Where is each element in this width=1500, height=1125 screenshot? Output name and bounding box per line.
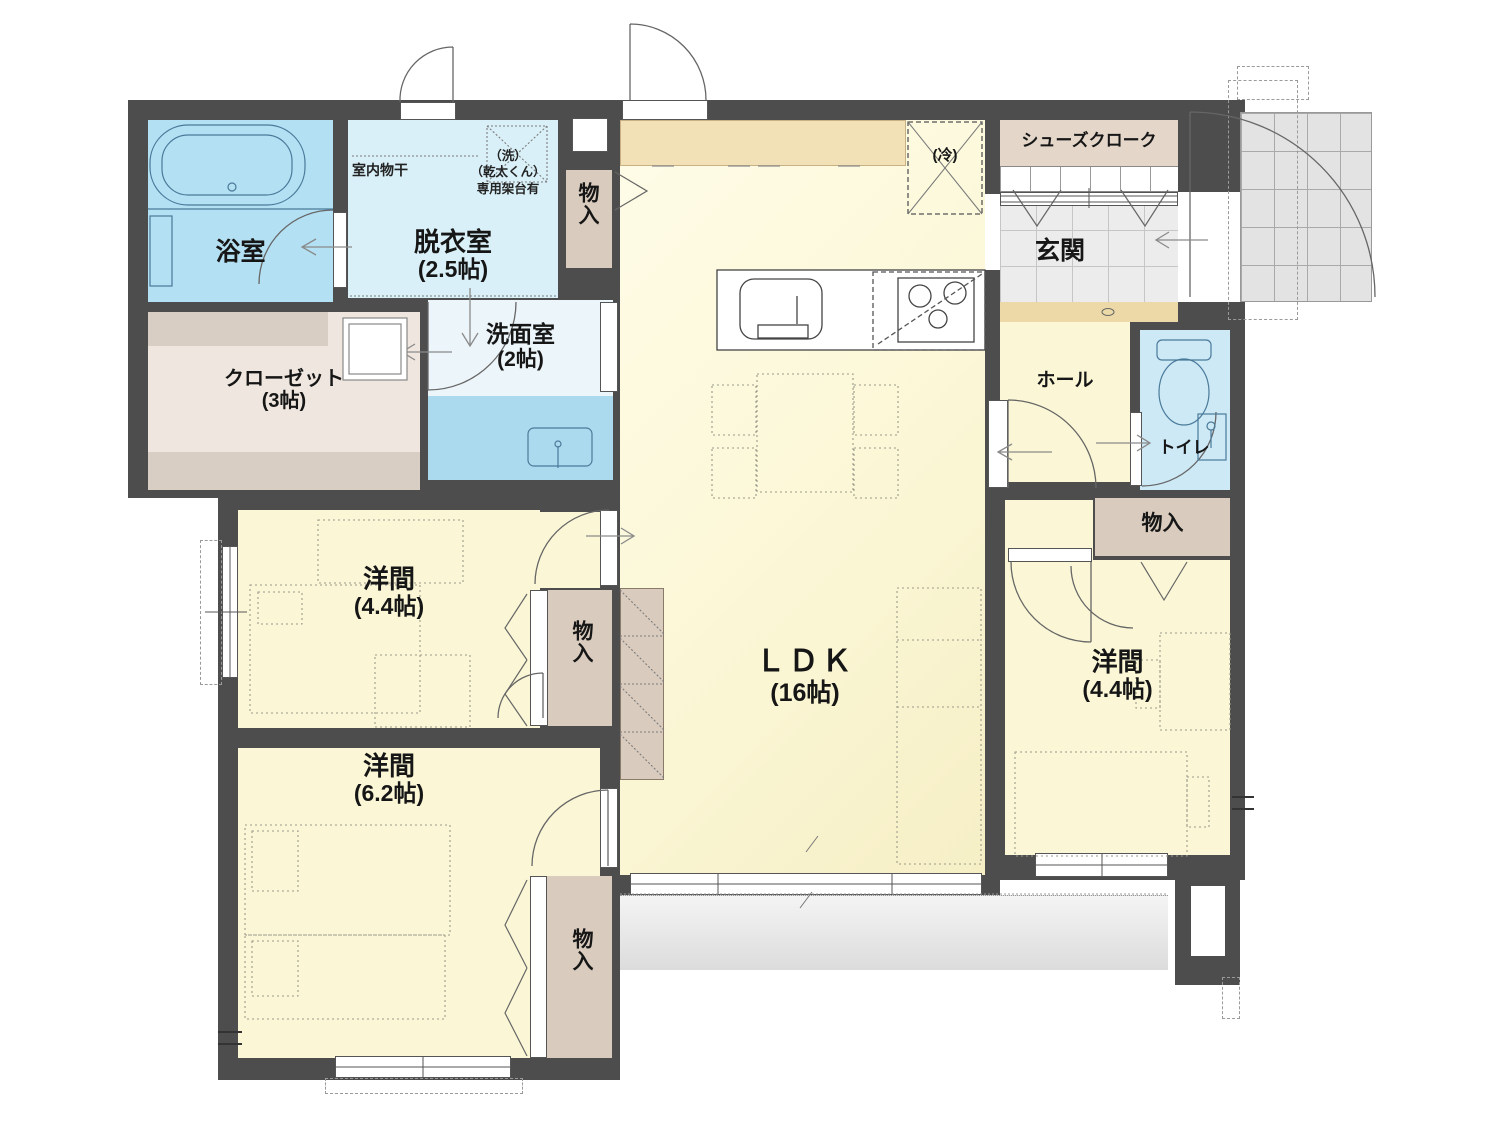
label-dressing: 脱衣室 (2.5帖) — [348, 228, 558, 283]
west-left-name: 洋間 — [363, 564, 415, 594]
west-bottom-size: (6.2帖) — [238, 781, 540, 807]
label-west-right: 洋間 (4.4帖) — [1005, 648, 1230, 703]
label-shoe-cloak: シューズクローク — [1000, 131, 1178, 150]
deck-terrace — [620, 895, 1168, 970]
label-ldk: ＬＤＫ (16帖) — [720, 645, 890, 707]
label-toilet: トイレ — [1138, 438, 1230, 457]
label-hall: ホール — [1000, 370, 1130, 391]
west-right-name: 洋間 — [1091, 647, 1143, 677]
opening-hall-door — [988, 400, 1008, 488]
storage-top-window — [572, 118, 608, 152]
label-storage-mid: 物入 — [566, 620, 596, 664]
washroom-size: (2帖) — [428, 348, 613, 372]
opening-back-door — [622, 100, 708, 120]
eave-porch — [1228, 80, 1298, 320]
eave-top-right — [1237, 66, 1309, 100]
window-left-wall — [222, 546, 238, 678]
label-washer-note: （洗） （乾太くん） 専用架台有 — [452, 148, 564, 197]
storage-top-name: 物入 — [576, 182, 599, 226]
label-west-bottom: 洋間 (6.2帖) — [238, 752, 540, 807]
west-right-size: (4.4帖) — [1005, 677, 1230, 703]
washer-note-line1: （洗） — [452, 148, 564, 164]
washer-note-line2: （乾太くん） — [452, 164, 564, 180]
entrance-name: 玄関 — [1035, 237, 1085, 265]
corridor-left — [540, 512, 600, 588]
floor-plan: 浴室 脱衣室 (2.5帖) 洗面室 (2帖) クローゼット (3帖) ＬＤＫ (… — [0, 0, 1500, 1125]
label-west-left: 洋間 (4.4帖) — [238, 565, 540, 620]
room-west-bottom-b — [238, 876, 530, 1058]
shoe-cloak-shelf — [1000, 166, 1178, 192]
eave-bottom-window — [325, 1078, 523, 1094]
hall-name: ホール — [1036, 370, 1093, 391]
label-fridge: (冷) — [908, 148, 982, 165]
label-entrance: 玄関 — [1000, 237, 1120, 265]
dressing-size: (2.5帖) — [348, 257, 558, 283]
eave-left-window — [200, 540, 222, 685]
label-storage-bottom: 物入 — [566, 928, 596, 972]
label-bath: 浴室 — [148, 238, 333, 266]
opening-west44l-door — [600, 510, 618, 586]
entrance-sliding-door — [1000, 192, 1178, 206]
kitchen-counter — [620, 120, 906, 166]
fridge-text: (冷) — [933, 147, 958, 164]
west-left-size: (4.4帖) — [238, 594, 540, 620]
eave-bottom-right — [1222, 977, 1240, 1019]
opening-bath-door — [333, 212, 347, 288]
storage-right-name: 物入 — [1142, 512, 1184, 535]
alcove-niche — [1191, 886, 1225, 956]
ldk-size: (16帖) — [720, 679, 890, 707]
storage-bottom-doorstrip — [530, 876, 547, 1058]
storage-mid-name: 物入 — [570, 620, 593, 664]
entrance-step — [1000, 302, 1178, 322]
washroom-name: 洗面室 — [486, 321, 555, 347]
opening-dressing-door — [400, 102, 456, 120]
storage-bottom-name: 物入 — [570, 928, 593, 972]
closet-shelf-top — [148, 312, 328, 346]
room-toilet — [1140, 330, 1230, 490]
west-bottom-name: 洋間 — [363, 751, 415, 781]
label-storage-right: 物入 — [1095, 512, 1230, 536]
opening-west62-door — [600, 788, 618, 868]
window-bottom-west62 — [335, 1056, 511, 1078]
opening-west-right-door — [1008, 548, 1092, 562]
ldk-name: ＬＤＫ — [756, 645, 855, 678]
washroom-vanity-area — [428, 396, 613, 480]
bath-name: 浴室 — [215, 238, 265, 266]
room-ldk — [620, 120, 985, 875]
shoe-cloak-name: シューズクローク — [1021, 131, 1156, 150]
washer-note-line3: 専用架台有 — [452, 181, 564, 197]
closet-size: (3帖) — [148, 390, 420, 412]
closet-shelf-bottom — [148, 452, 420, 490]
window-ldk-slider — [630, 873, 982, 895]
clothes-pole-text: 室内物干 — [352, 162, 408, 178]
label-storage-top: 物入 — [572, 182, 602, 226]
window-west-right-bottom — [1035, 853, 1168, 877]
dressing-name: 脱衣室 — [414, 227, 492, 257]
label-closet: クローゼット (3帖) — [148, 368, 420, 413]
room-west-right — [1005, 560, 1230, 855]
label-washroom: 洗面室 (2帖) — [428, 322, 613, 371]
toilet-name: トイレ — [1159, 438, 1210, 457]
room-bath — [148, 120, 333, 302]
ldk-tall-cabinet — [620, 588, 664, 780]
closet-name: クローゼット — [224, 368, 344, 390]
room-hall — [1000, 322, 1130, 482]
opening-ldk-entrance — [985, 194, 1000, 270]
